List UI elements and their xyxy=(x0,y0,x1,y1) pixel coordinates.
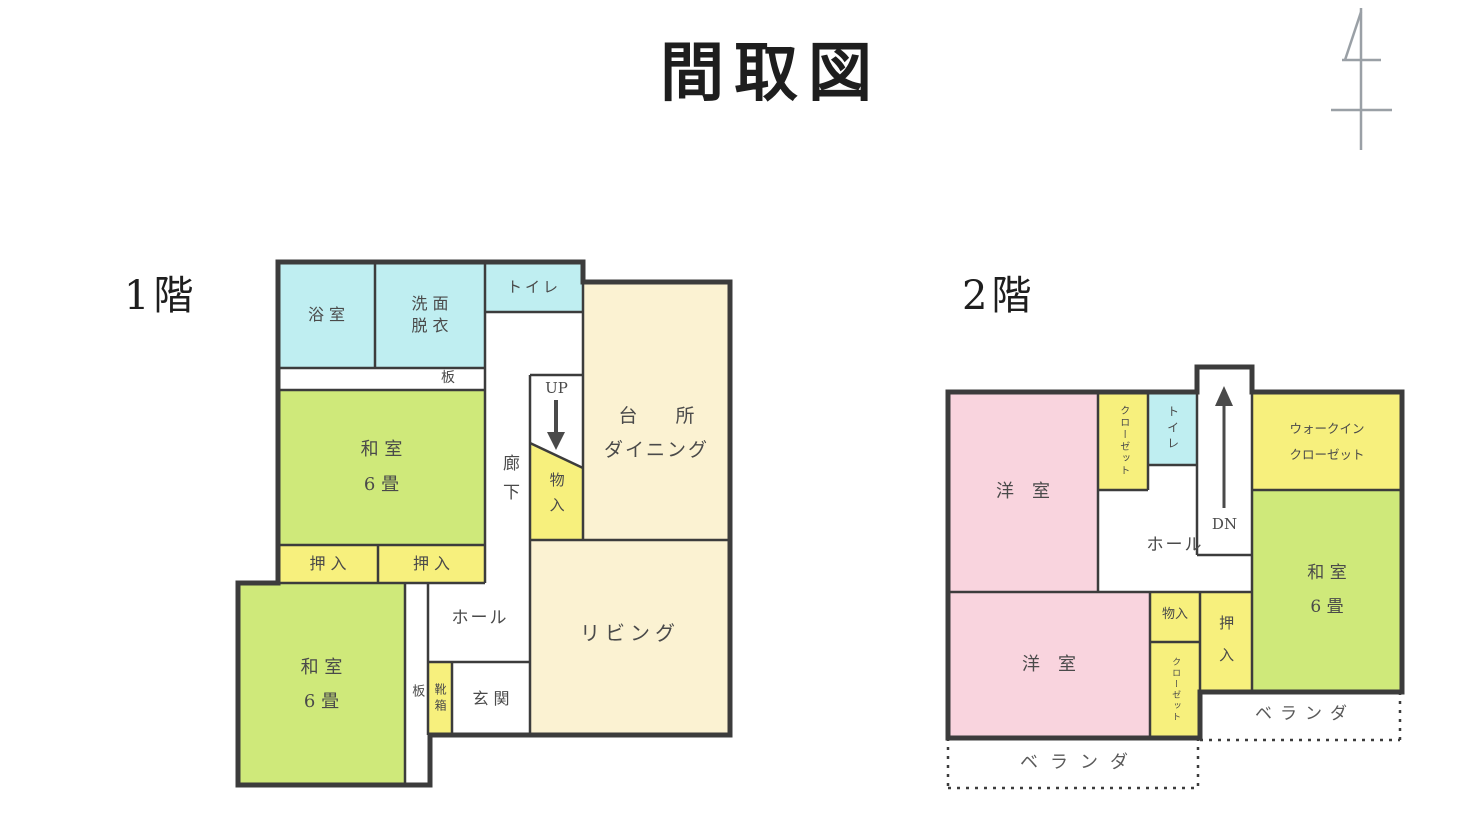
stairs-up-label: UP xyxy=(533,377,580,399)
room-western-upper-label: 洋 室 xyxy=(948,392,1098,592)
room-oshiire-2f-label: 押 入 xyxy=(1200,600,1252,682)
room-western-lower-label: 洋 室 xyxy=(948,592,1150,738)
room-storage-1f-label: 物入 xyxy=(530,458,583,536)
room-closet-right-label: 押 入 xyxy=(378,545,485,583)
room-kitchen-dining-label: 台 所ダイニング xyxy=(583,393,730,473)
entrance-label: 玄 関 xyxy=(452,662,530,735)
room-toilet-1f-label: トイレ xyxy=(485,262,583,312)
room-living-label: リビング xyxy=(530,613,730,653)
floor2-label: 2階 xyxy=(962,263,1035,321)
room-washitsu-lower-label: 和 室6 畳 xyxy=(238,635,405,735)
room-walkin-closet-label: ウォークインクローゼット xyxy=(1252,410,1402,474)
floor1-label: 1階 xyxy=(124,263,197,321)
veranda-right-label: ベランダ xyxy=(1230,694,1380,734)
north-arrow-icon xyxy=(1331,8,1392,150)
page-title: 間取図 xyxy=(660,22,882,114)
room-toilet-2f-label: トイレ xyxy=(1148,396,1197,462)
room-closet-upper-label: クローゼット xyxy=(1098,396,1148,486)
down-stairs-arrow-icon xyxy=(1215,386,1233,508)
room-washitsu-2f-label: 和 室6 畳 xyxy=(1252,552,1402,628)
hall-1f-label: ホール xyxy=(430,598,530,638)
floor-plan-canvas: 間取図 1階 2階 xyxy=(0,0,1464,832)
room-closet-lower-label: クローゼット xyxy=(1150,646,1200,734)
room-storage-2f-label: 物入 xyxy=(1150,595,1200,635)
room-closet-left-label: 押 入 xyxy=(278,545,378,583)
board-top-label: 板 xyxy=(418,366,478,390)
shoe-box-label: 靴箱 xyxy=(428,666,452,732)
board-side-label: 板 xyxy=(405,668,428,713)
corridor-label: 廊下 xyxy=(487,428,530,538)
room-bath-label: 浴 室 xyxy=(278,262,375,368)
up-arrow-icon xyxy=(547,400,565,450)
room-washitsu-upper-label: 和 室6 畳 xyxy=(278,390,485,545)
hall-2f-label: ホール xyxy=(1098,525,1252,565)
room-washroom-label: 洗 面脱 衣 xyxy=(375,262,485,368)
veranda-bottom-label: ベランダ xyxy=(960,743,1200,783)
